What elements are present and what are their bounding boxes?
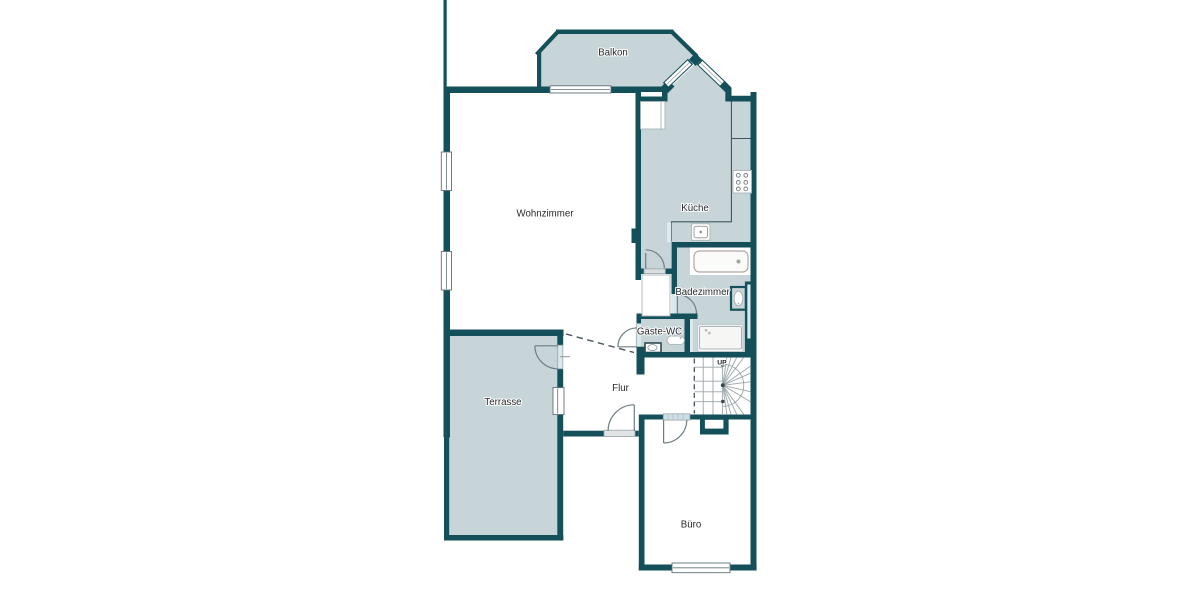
svg-text:Büro: Büro bbox=[681, 520, 701, 531]
svg-text:Terrasse: Terrasse bbox=[484, 397, 521, 408]
svg-text:Balkon: Balkon bbox=[598, 48, 628, 59]
svg-text:Gäste-WC: Gäste-WC bbox=[637, 327, 682, 338]
svg-text:Badezimmer: Badezimmer bbox=[675, 287, 730, 298]
svg-text:UP: UP bbox=[717, 360, 727, 367]
svg-text:Küche: Küche bbox=[681, 203, 708, 214]
svg-text:Flur: Flur bbox=[612, 383, 629, 394]
svg-text:Wohnzimmer: Wohnzimmer bbox=[517, 209, 575, 220]
